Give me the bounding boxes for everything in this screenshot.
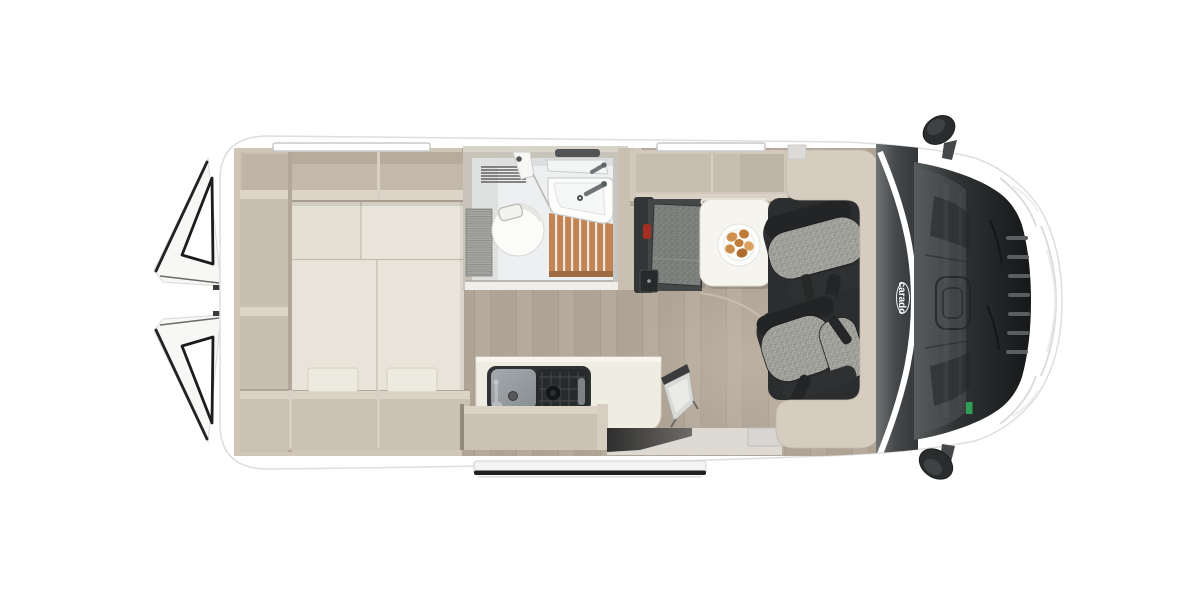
- svg-text:carado: carado: [896, 282, 907, 315]
